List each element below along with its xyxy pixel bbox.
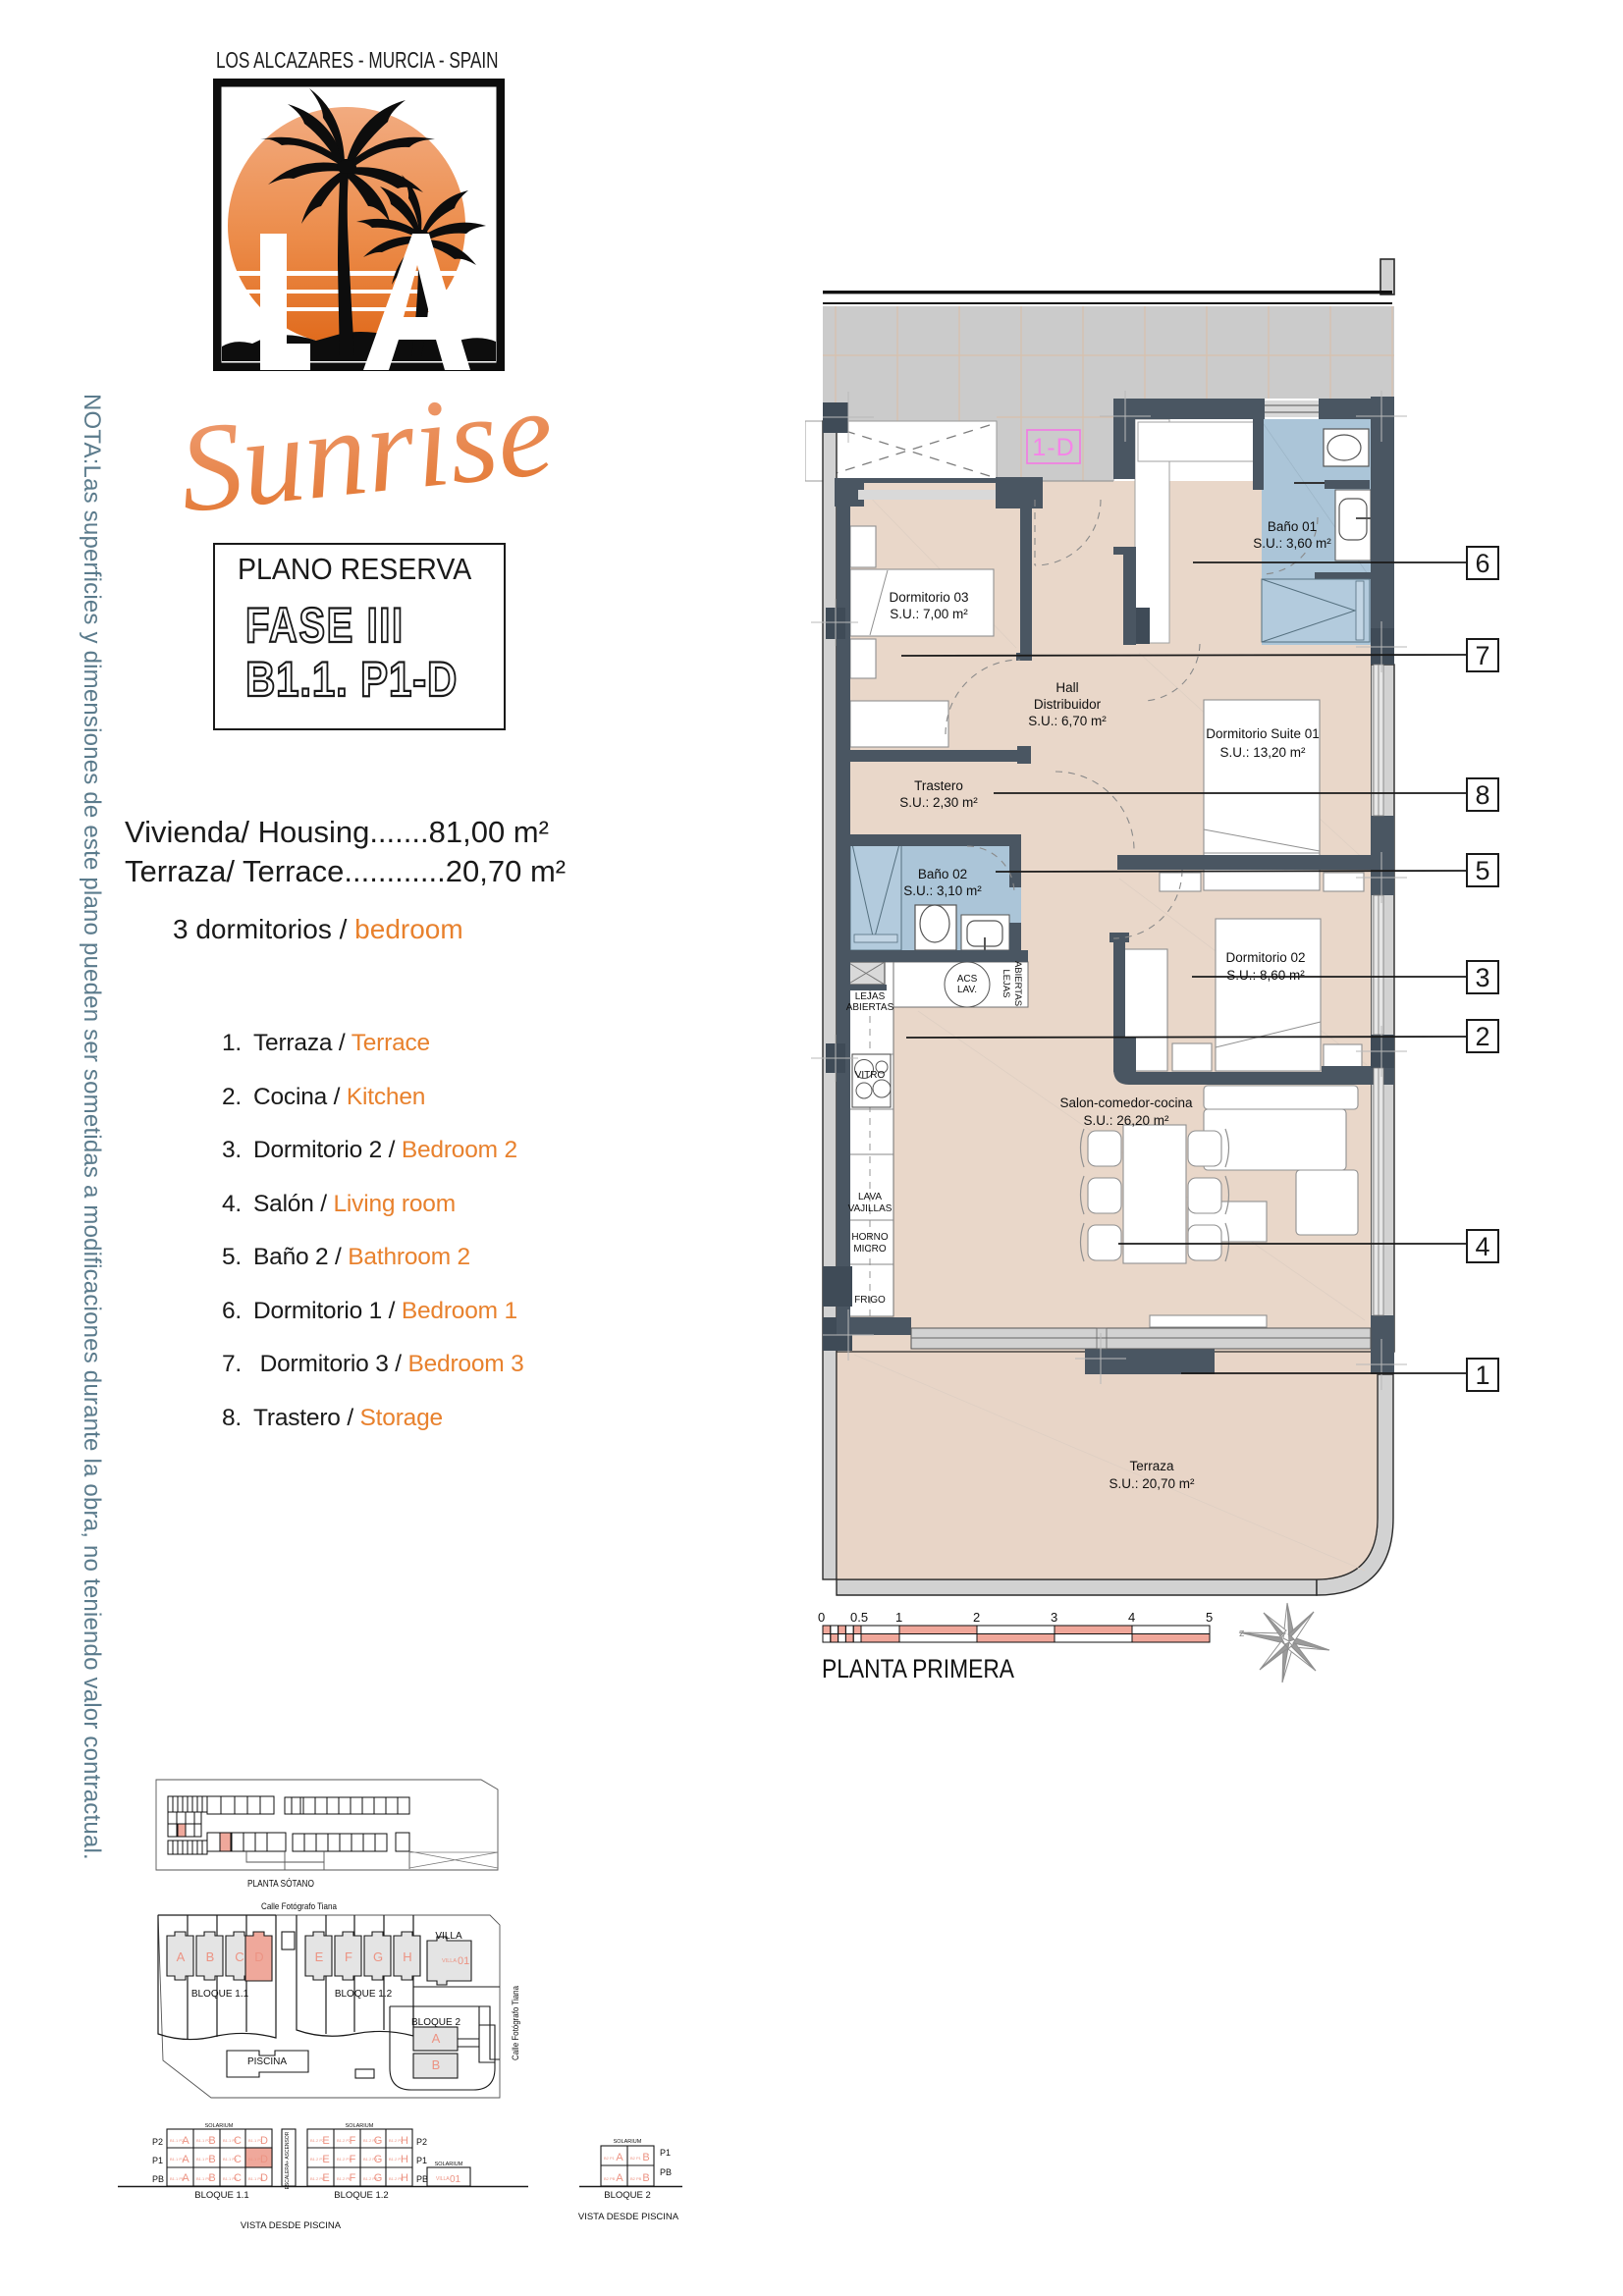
svg-text:ESCALERA+ ASCENSOR: ESCALERA+ ASCENSOR — [285, 2131, 291, 2189]
svg-text:S.U.: 20,70 m²: S.U.: 20,70 m² — [1109, 1476, 1195, 1491]
svg-text:ABIERTAS: ABIERTAS — [846, 1002, 894, 1013]
svg-text:B1.1 PB: B1.1 PB — [223, 2176, 238, 2181]
svg-text:B1.2 P1: B1.2 P1 — [310, 2157, 325, 2162]
svg-text:PISCINA: PISCINA — [247, 2056, 287, 2067]
svg-text:01: 01 — [450, 2174, 461, 2185]
svg-text:B1.1 P1: B1.1 P1 — [223, 2157, 238, 2162]
svg-text:B1.1 PB: B1.1 PB — [248, 2176, 263, 2181]
svg-text:B1.2 P2: B1.2 P2 — [389, 2138, 404, 2143]
svg-text:PB: PB — [660, 2167, 672, 2177]
svg-text:Dormitorio 02: Dormitorio 02 — [1225, 950, 1305, 965]
svg-text:VILLA: VILLA — [435, 1931, 462, 1942]
svg-text:Sunrise: Sunrise — [173, 363, 560, 539]
svg-text:5: 5 — [1475, 856, 1489, 885]
svg-text:P1: P1 — [416, 2156, 427, 2165]
svg-text:z: z — [1239, 1628, 1245, 1639]
svg-text:S.U.: 26,20 m²: S.U.: 26,20 m² — [1083, 1113, 1169, 1128]
svg-text:P1: P1 — [660, 2148, 671, 2158]
svg-text:S.U.: 13,20 m²: S.U.: 13,20 m² — [1219, 745, 1306, 760]
svg-text:P2: P2 — [152, 2137, 163, 2147]
svg-text:B: B — [432, 2057, 441, 2072]
svg-text:B: B — [642, 2172, 649, 2184]
svg-text:ABIERTAS: ABIERTAS — [1012, 961, 1023, 1006]
svg-text:B1.1 P2: B1.1 P2 — [170, 2138, 185, 2143]
svg-text:BLOQUE 2: BLOQUE 2 — [604, 2190, 651, 2201]
svg-text:FRIGO: FRIGO — [854, 1295, 886, 1306]
svg-text:B1.2 PB: B1.2 PB — [310, 2176, 325, 2181]
svg-text:C: C — [235, 1949, 243, 1964]
svg-text:Terraza: Terraza — [1129, 1459, 1174, 1473]
svg-text:B1.1 PB: B1.1 PB — [196, 2176, 211, 2181]
svg-text:B2 PB: B2 PB — [630, 2176, 642, 2181]
svg-text:Baño 01: Baño 01 — [1268, 519, 1317, 534]
svg-text:S.U.: 8,60 m²: S.U.: 8,60 m² — [1226, 968, 1305, 983]
svg-text:SOLARIUM: SOLARIUM — [346, 2123, 374, 2129]
svg-text:B1.2 PB: B1.2 PB — [389, 2176, 404, 2181]
svg-text:B1.2 P2: B1.2 P2 — [363, 2138, 378, 2143]
svg-text:B1.1 P1: B1.1 P1 — [196, 2157, 211, 2162]
svg-text:1-D: 1-D — [1032, 434, 1074, 461]
svg-text:BLOQUE 1.1: BLOQUE 1.1 — [194, 2190, 248, 2201]
svg-text:VITRO: VITRO — [855, 1070, 886, 1081]
svg-text:7: 7 — [1475, 641, 1489, 670]
svg-text:4: 4 — [1475, 1232, 1489, 1261]
svg-text:VILLA: VILLA — [436, 2176, 450, 2182]
svg-text:S.U.: 3,10 m²: S.U.: 3,10 m² — [903, 883, 982, 898]
svg-text:PLANTA SÓTANO: PLANTA SÓTANO — [247, 1877, 314, 1890]
svg-text:Distribuidor: Distribuidor — [1034, 697, 1102, 712]
svg-text:A: A — [177, 1949, 186, 1964]
svg-text:BLOQUE 1.1: BLOQUE 1.1 — [191, 1989, 249, 2000]
svg-text:B1.2 PB: B1.2 PB — [363, 2176, 378, 2181]
svg-text:ACS: ACS — [957, 974, 978, 985]
svg-text:E: E — [315, 1949, 324, 1964]
svg-text:S.U.: 3,60 m²: S.U.: 3,60 m² — [1253, 536, 1331, 551]
svg-text:LEJAS: LEJAS — [855, 991, 886, 1002]
svg-text:B1.1 P2: B1.1 P2 — [196, 2138, 211, 2143]
svg-text:LEJAS: LEJAS — [1001, 969, 1011, 997]
svg-text:S.U.: 7,00 m²: S.U.: 7,00 m² — [890, 607, 968, 621]
svg-text:SOLARIUM: SOLARIUM — [435, 2162, 463, 2167]
svg-text:G: G — [373, 1949, 383, 1964]
svg-text:0.5: 0.5 — [850, 1610, 868, 1625]
svg-text:8: 8 — [1475, 780, 1489, 810]
svg-text:B1.1 PB: B1.1 PB — [170, 2176, 185, 2181]
svg-text:B1.2 P1: B1.2 P1 — [337, 2157, 352, 2162]
svg-text:BLOQUE 2: BLOQUE 2 — [411, 2017, 460, 2028]
svg-text:D: D — [254, 1949, 263, 1964]
svg-text:1: 1 — [895, 1610, 902, 1625]
svg-text:2: 2 — [1475, 1022, 1489, 1051]
svg-text:BLOQUE 1.2: BLOQUE 1.2 — [334, 2190, 388, 2201]
svg-text:3: 3 — [1051, 1610, 1057, 1625]
svg-text:LAVA: LAVA — [858, 1192, 882, 1202]
svg-text:VISTA DESDE PISCINA: VISTA DESDE PISCINA — [241, 2220, 342, 2231]
svg-text:5: 5 — [1206, 1610, 1213, 1625]
svg-text:P2: P2 — [416, 2137, 427, 2147]
svg-text:PLANTA PRIMERA: PLANTA PRIMERA — [822, 1654, 1014, 1683]
svg-text:01: 01 — [458, 1955, 469, 1967]
svg-text:P1: P1 — [152, 2156, 163, 2165]
svg-text:S.U.: 6,70 m²: S.U.: 6,70 m² — [1028, 714, 1107, 728]
svg-text:BLOQUE 1.2: BLOQUE 1.2 — [335, 1989, 393, 2000]
svg-text:B1.2 P1: B1.2 P1 — [389, 2157, 404, 2162]
svg-text:1: 1 — [1475, 1361, 1489, 1390]
svg-text:B1.2 P2: B1.2 P2 — [310, 2138, 325, 2143]
svg-text:B2 P1: B2 P1 — [604, 2156, 616, 2161]
svg-text:VAJILLAS: VAJILLAS — [848, 1203, 893, 1214]
svg-text:Dormitorio 03: Dormitorio 03 — [889, 590, 968, 605]
svg-text:PB: PB — [416, 2174, 428, 2184]
svg-text:6: 6 — [1475, 549, 1489, 578]
svg-text:H: H — [403, 1949, 411, 1964]
svg-text:LAV.: LAV. — [957, 985, 977, 995]
svg-text:A: A — [432, 2031, 441, 2046]
svg-text:B1.2 PB: B1.2 PB — [337, 2176, 352, 2181]
svg-text:Dormitorio Suite 01: Dormitorio Suite 01 — [1206, 726, 1320, 741]
svg-text:F: F — [345, 1949, 352, 1964]
svg-text:B1.1 P1: B1.1 P1 — [170, 2157, 185, 2162]
svg-text:Calle Fotógrafo Tiana: Calle Fotógrafo Tiana — [511, 1985, 521, 2060]
svg-text:B1.2 P1: B1.2 P1 — [363, 2157, 378, 2162]
svg-text:B1.1 P2: B1.1 P2 — [248, 2138, 263, 2143]
svg-text:3: 3 — [1475, 963, 1489, 992]
svg-text:A: A — [616, 2152, 623, 2163]
svg-text:Baño 02: Baño 02 — [918, 867, 967, 881]
svg-text:B1.1 P2: B1.1 P2 — [223, 2138, 238, 2143]
svg-text:2: 2 — [973, 1610, 980, 1625]
svg-text:0: 0 — [818, 1610, 825, 1625]
svg-text:Hall: Hall — [1055, 680, 1078, 695]
svg-text:Calle Fotógrafo Tiana: Calle Fotógrafo Tiana — [261, 1901, 338, 1912]
svg-text:B1.1 P1: B1.1 P1 — [248, 2157, 263, 2162]
svg-text:A: A — [616, 2172, 623, 2184]
svg-text:HORNO: HORNO — [851, 1232, 888, 1243]
svg-text:VISTA DESDE PISCINA: VISTA DESDE PISCINA — [578, 2212, 679, 2222]
svg-text:B2 PB: B2 PB — [604, 2176, 616, 2181]
svg-text:MICRO: MICRO — [853, 1244, 887, 1255]
svg-text:B2 P1: B2 P1 — [630, 2156, 642, 2161]
svg-text:Trastero: Trastero — [914, 778, 963, 793]
svg-text:S.U.: 2,30 m²: S.U.: 2,30 m² — [899, 795, 978, 810]
svg-text:B1.2 P2: B1.2 P2 — [337, 2138, 352, 2143]
svg-text:SOLARIUM: SOLARIUM — [614, 2139, 642, 2145]
svg-text:B: B — [206, 1949, 215, 1964]
svg-text:B: B — [642, 2152, 649, 2163]
svg-text:Salon-comedor-cocina: Salon-comedor-cocina — [1059, 1095, 1193, 1110]
svg-text:VILLA: VILLA — [442, 1958, 457, 1964]
svg-text:SOLARIUM: SOLARIUM — [205, 2123, 234, 2129]
svg-text:PB: PB — [152, 2174, 164, 2184]
svg-text:4: 4 — [1128, 1610, 1135, 1625]
